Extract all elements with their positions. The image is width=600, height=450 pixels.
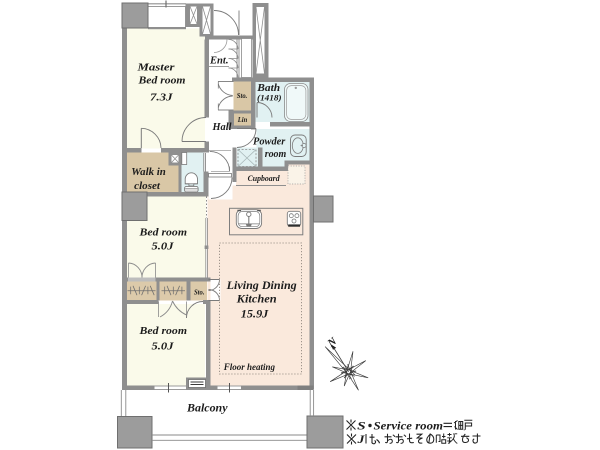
svg-text:Floor heating: Floor heating (223, 362, 276, 372)
svg-text:5.0J: 5.0J (152, 341, 175, 353)
svg-text:7.3J: 7.3J (150, 91, 173, 103)
svg-text:Lin: Lin (237, 116, 248, 124)
svg-text:Bed room: Bed room (137, 75, 186, 87)
svg-text:Bed room: Bed room (138, 226, 187, 238)
svg-text:(1418): (1418) (257, 93, 282, 103)
svg-text:Master: Master (136, 62, 175, 74)
svg-text:closet: closet (134, 181, 161, 192)
svg-text:Bed room: Bed room (138, 325, 187, 337)
svg-text:Hall: Hall (212, 122, 232, 133)
svg-text:5.0J: 5.0J (152, 240, 175, 252)
svg-text:Sto.: Sto. (194, 288, 205, 296)
svg-text:Walk in: Walk in (131, 167, 166, 178)
svg-text:Cupboard: Cupboard (248, 173, 281, 183)
svg-text:room: room (265, 149, 287, 160)
svg-text:Service room: Service room (374, 420, 444, 432)
svg-text:Living Dining: Living Dining (226, 280, 297, 292)
svg-text:S: S (357, 420, 366, 432)
svg-text:Powder: Powder (253, 136, 286, 147)
svg-text:15.9J: 15.9J (241, 308, 270, 320)
svg-text:Balcony: Balcony (186, 400, 228, 414)
svg-text:Ent.: Ent. (209, 56, 229, 67)
svg-text:Kitchen: Kitchen (236, 293, 277, 305)
svg-text:Sto.: Sto. (237, 92, 248, 100)
